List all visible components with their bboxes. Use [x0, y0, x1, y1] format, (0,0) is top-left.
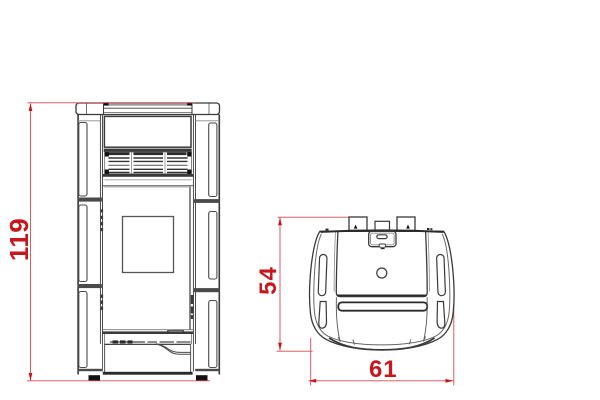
svg-text:119: 119 [4, 218, 34, 261]
svg-text:61: 61 [369, 356, 398, 383]
svg-text:54: 54 [255, 266, 282, 295]
